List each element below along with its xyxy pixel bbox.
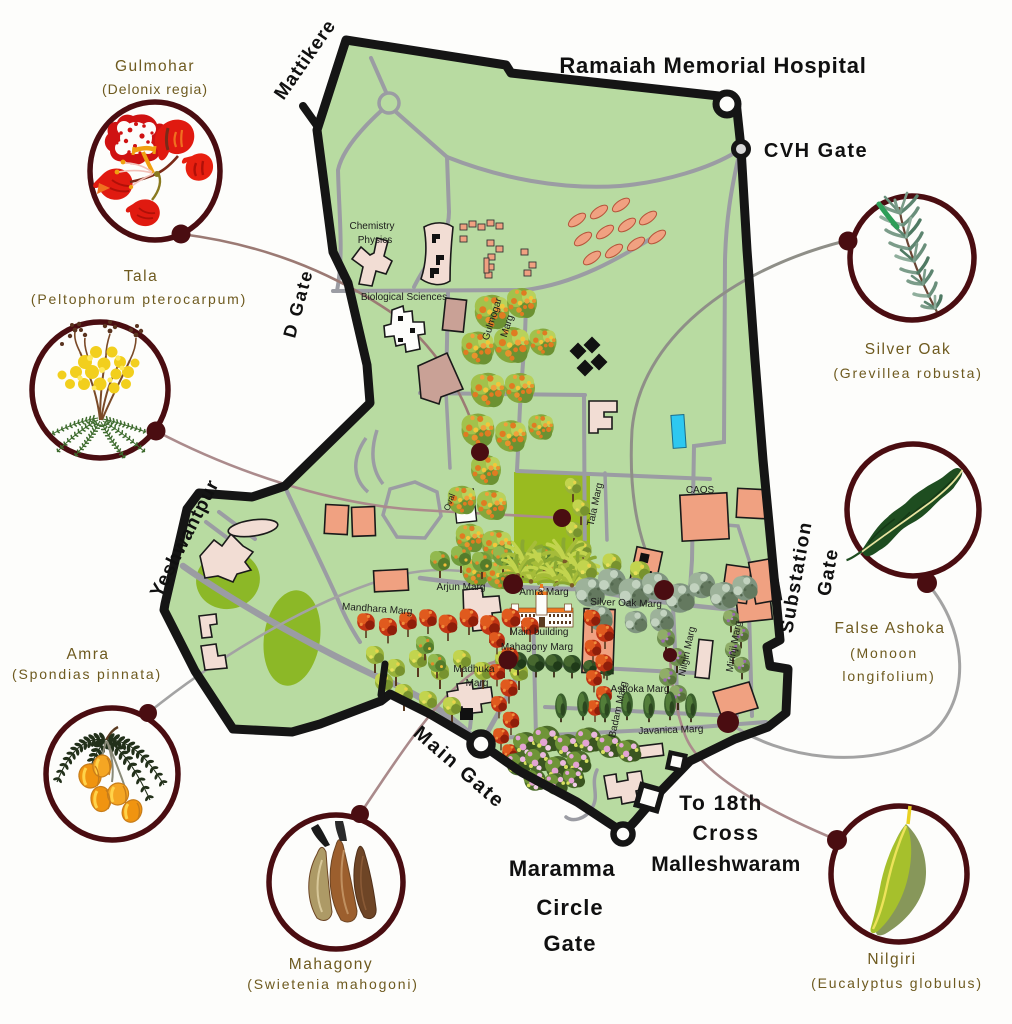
svg-text:Physics: Physics — [358, 235, 392, 246]
svg-text:(Delonix regia): (Delonix regia) — [102, 81, 208, 97]
svg-text:Amra: Amra — [66, 646, 109, 663]
svg-text:Cross: Cross — [692, 822, 759, 845]
svg-text:Gulmohar: Gulmohar — [115, 58, 195, 75]
svg-text:Mahagony Marg: Mahagony Marg — [501, 642, 573, 653]
svg-text:Mahagony: Mahagony — [289, 956, 373, 973]
svg-text:(Monoon: (Monoon — [850, 645, 918, 661]
svg-text:False Ashoka: False Ashoka — [834, 620, 945, 637]
svg-text:Circle: Circle — [536, 895, 603, 920]
svg-text:Silver Oak: Silver Oak — [865, 341, 952, 358]
svg-text:Amra Marg: Amra Marg — [519, 587, 568, 598]
svg-text:Nilgiri: Nilgiri — [867, 951, 916, 968]
svg-text:Javanica Marg: Javanica Marg — [638, 724, 703, 737]
svg-text:(Swietenia mahogoni): (Swietenia mahogoni) — [247, 976, 418, 992]
svg-text:Main building: Main building — [510, 627, 569, 638]
svg-text:Ramaiah Memorial Hospital: Ramaiah Memorial Hospital — [559, 53, 866, 78]
svg-text:(Peltophorum pterocarpum): (Peltophorum pterocarpum) — [31, 291, 247, 307]
svg-text:(Grevillea robusta): (Grevillea robusta) — [833, 365, 982, 381]
svg-text:Malleshwaram: Malleshwaram — [651, 853, 801, 876]
svg-text:Maramma: Maramma — [509, 856, 615, 881]
svg-text:longifolium): longifolium) — [842, 668, 935, 684]
svg-text:Marg: Marg — [466, 678, 489, 689]
svg-text:To 18th: To 18th — [679, 792, 763, 815]
svg-text:Madhuka: Madhuka — [453, 664, 495, 675]
svg-text:Gate: Gate — [544, 931, 597, 956]
svg-text:Chemistry: Chemistry — [349, 221, 394, 232]
svg-text:CVH Gate: CVH Gate — [764, 140, 868, 162]
svg-text:Biological Sciences: Biological Sciences — [361, 292, 447, 303]
svg-text:Tala: Tala — [124, 268, 158, 285]
svg-text:(Eucalyptus globulus): (Eucalyptus globulus) — [811, 975, 983, 991]
svg-text:Arjun Marg: Arjun Marg — [437, 582, 486, 593]
svg-text:CAOS: CAOS — [686, 485, 715, 496]
svg-text:(Spondias pinnata): (Spondias pinnata) — [12, 666, 162, 682]
